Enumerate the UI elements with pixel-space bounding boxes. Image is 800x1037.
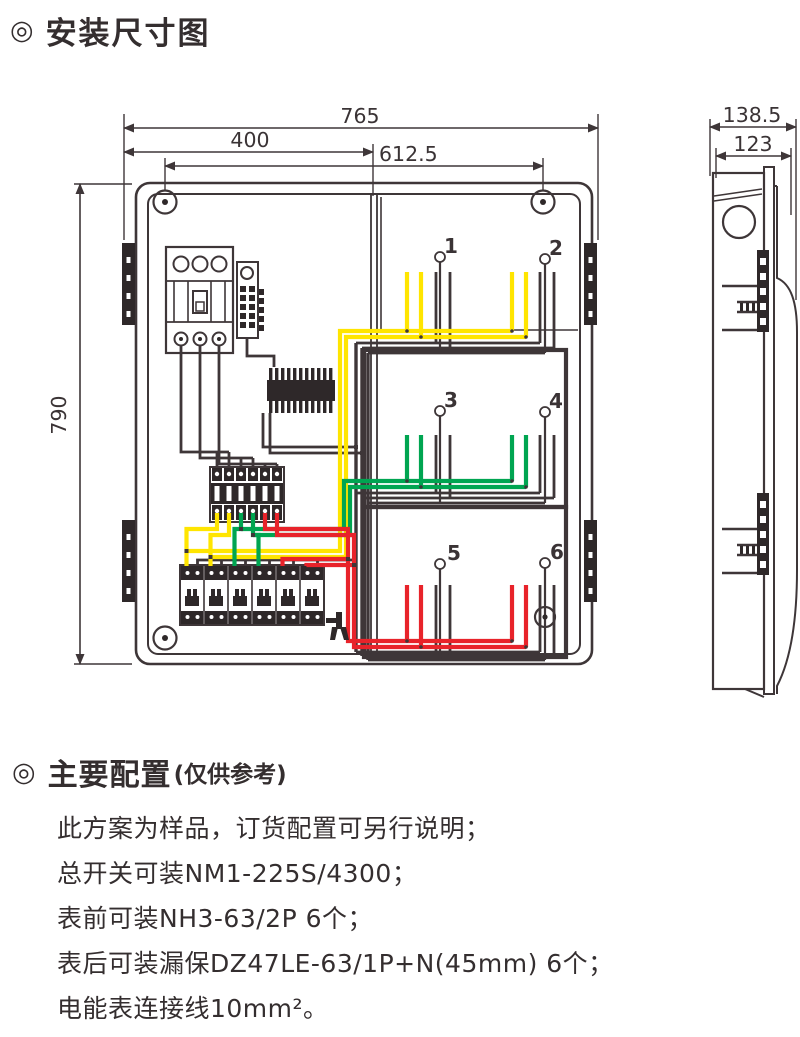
side-door-profile	[774, 186, 797, 694]
dim-depth: 138.5	[723, 103, 782, 127]
side-view: 138.5 123	[710, 103, 797, 697]
hinge-right-top	[584, 243, 597, 325]
main-breaker	[166, 247, 233, 353]
config-title-note: (仅供参考)	[174, 755, 287, 789]
side-door-plate	[764, 167, 774, 694]
leakage-breaker-row	[180, 565, 324, 625]
side-hinge-bottom	[722, 493, 769, 575]
side-bottom-step	[713, 689, 764, 697]
page: ◎ 安装尺寸图 765 400	[0, 0, 800, 1037]
config-bullet-icon: ◎	[12, 757, 36, 788]
meter-compartment-2	[364, 350, 566, 507]
dim-door-depth: 123	[733, 132, 772, 156]
front-view: 765 400 612.5 790	[47, 104, 598, 664]
dim-hole-span: 612.5	[379, 142, 438, 166]
hinge-left-top	[122, 243, 135, 325]
meter-position-label-3: 3	[444, 388, 458, 412]
config-line: 表后可装漏保DZ47LE-63/1P+N(45mm) 6个；	[57, 941, 777, 986]
config-list: 此方案为样品，订货配置可另行说明； 总开关可装NM1-225S/4300； 表前…	[57, 806, 777, 1031]
meter-leader-lines	[440, 262, 545, 660]
meter-compartment-3	[364, 507, 566, 657]
side-box-body	[713, 173, 764, 689]
hinge-left-bottom	[122, 520, 135, 602]
side-hinge-top	[722, 250, 769, 332]
config-title: 主要配置	[48, 750, 172, 794]
meter-position-label-1: 1	[444, 234, 458, 258]
meter-position-label-5: 5	[447, 541, 461, 565]
dim-height: 790	[47, 395, 71, 434]
ground-terminal-icon	[326, 612, 349, 640]
config-line: 表前可装NH3-63/2P 6个；	[57, 896, 777, 941]
side-top-lip	[714, 189, 762, 201]
wiring-duct	[267, 368, 335, 413]
installation-drawing: 765 400 612.5 790	[0, 0, 800, 735]
config-line: 电能表连接线10mm²。	[57, 986, 777, 1031]
black-trunk-wires	[356, 343, 368, 660]
dim-overall-width: 765	[340, 104, 379, 128]
meter-isolator-row	[210, 467, 284, 522]
config-line: 此方案为样品，订货配置可另行说明；	[57, 806, 777, 851]
mounting-screw-bottom-left	[154, 627, 177, 650]
dim-left-width: 400	[230, 128, 269, 152]
meter-position-label-4: 4	[549, 389, 563, 413]
section-title-config: ◎ 主要配置 (仅供参考)	[12, 750, 287, 794]
aux-terminal-block	[237, 262, 264, 338]
config-line: 总开关可装NM1-225S/4300；	[57, 851, 777, 896]
hinge-right-bottom	[584, 520, 597, 602]
side-knockout-hole	[723, 206, 755, 238]
meter-position-label-2: 2	[549, 236, 563, 260]
meter-position-label-6: 6	[550, 540, 564, 564]
section-divider	[371, 194, 377, 654]
